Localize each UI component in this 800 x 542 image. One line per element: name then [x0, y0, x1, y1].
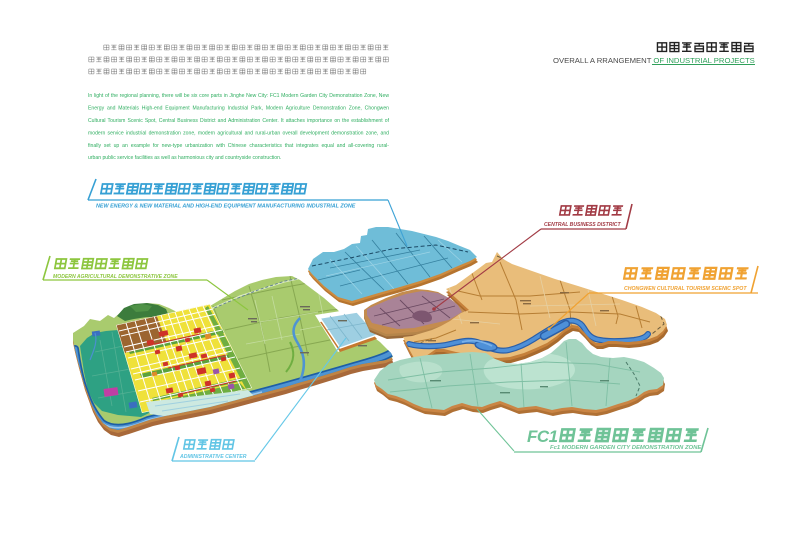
- svg-text:CENTRAL BUSINESS DISTRICT: CENTRAL BUSINESS DISTRICT: [544, 222, 621, 228]
- svg-text:MODERN AGRICULTURAL DEMONSTRAT: MODERN AGRICULTURAL DEMONSTRATIVE ZONE: [53, 274, 178, 280]
- svg-text:FC1: FC1: [527, 427, 558, 446]
- svg-text:CHONGWEN CULTURAL TOURISM SCEN: CHONGWEN CULTURAL TOURISM SCENIC SPOT: [624, 286, 747, 292]
- svg-text:ADMINISTRATIVE CENTER: ADMINISTRATIVE CENTER: [179, 454, 247, 460]
- svg-text:NEW ENERGY & NEW MATERIAL AND: NEW ENERGY & NEW MATERIAL AND HIGH-END E…: [96, 204, 356, 210]
- svg-text:Fc1 MODERN GARDEN CITY DEMONST: Fc1 MODERN GARDEN CITY DEMONSTRATION ZON…: [550, 445, 702, 451]
- svg-text:OVERALL A RRANGEMENT OF INDUST: OVERALL A RRANGEMENT OF INDUSTRIAL PROJE…: [553, 56, 755, 65]
